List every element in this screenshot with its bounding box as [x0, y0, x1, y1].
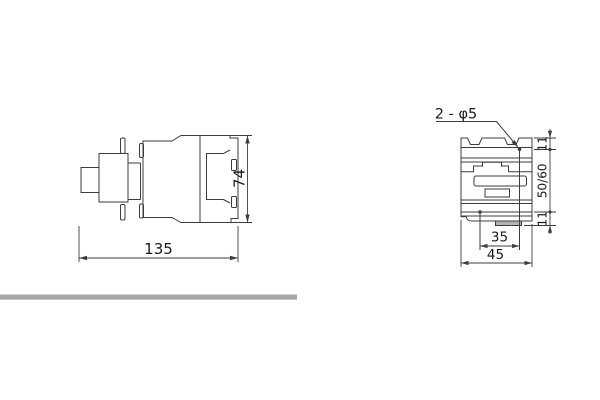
arrowhead — [461, 261, 469, 265]
hole-horizontal-span-label: 35 — [491, 230, 508, 246]
mounting-holes-label: 2 - φ5 — [435, 107, 477, 123]
nameplate — [474, 176, 527, 186]
divider-bar — [0, 295, 297, 300]
arrowhead — [230, 256, 238, 260]
bottom-mount-tab — [496, 221, 522, 226]
contactor-dimension-drawing: 135 74 — [0, 0, 600, 400]
hole-vertical-span-label: 50/60 — [536, 164, 550, 199]
hole-center-dot — [518, 147, 522, 151]
arrowhead — [245, 136, 249, 144]
arrowhead — [512, 244, 520, 248]
terminal-tab — [121, 205, 126, 221]
arrowhead — [245, 215, 249, 223]
side-front-block — [99, 154, 128, 203]
front-body-outline — [461, 138, 532, 221]
side-width-dimension-label: 135 — [144, 240, 173, 258]
rail-clip-top — [232, 160, 237, 171]
side-height-dimension-label: 74 — [231, 169, 249, 188]
side-terminal-box — [81, 168, 99, 193]
rail-clip-bottom — [232, 197, 237, 208]
side-pocket — [207, 150, 231, 203]
arrowhead — [79, 256, 87, 260]
side-body-outline — [143, 136, 238, 223]
front-width-dimension-label: 45 — [487, 247, 504, 263]
arrowhead — [525, 261, 533, 265]
bottom-hole-offset-label: 11 — [536, 211, 550, 226]
hole-center-dot — [478, 210, 482, 214]
side-view-labels: 135 74 — [144, 169, 248, 258]
front-raised-tab — [461, 162, 532, 171]
side-view: 135 74 — [79, 136, 252, 263]
top-hole-offset-label: 11 — [536, 136, 550, 151]
technical-drawing-page: 135 74 — [0, 0, 600, 400]
terminal-tab — [121, 138, 126, 154]
label-window — [485, 189, 510, 197]
front-view: 2 - φ5 11 50/60 11 35 45 — [435, 107, 556, 268]
